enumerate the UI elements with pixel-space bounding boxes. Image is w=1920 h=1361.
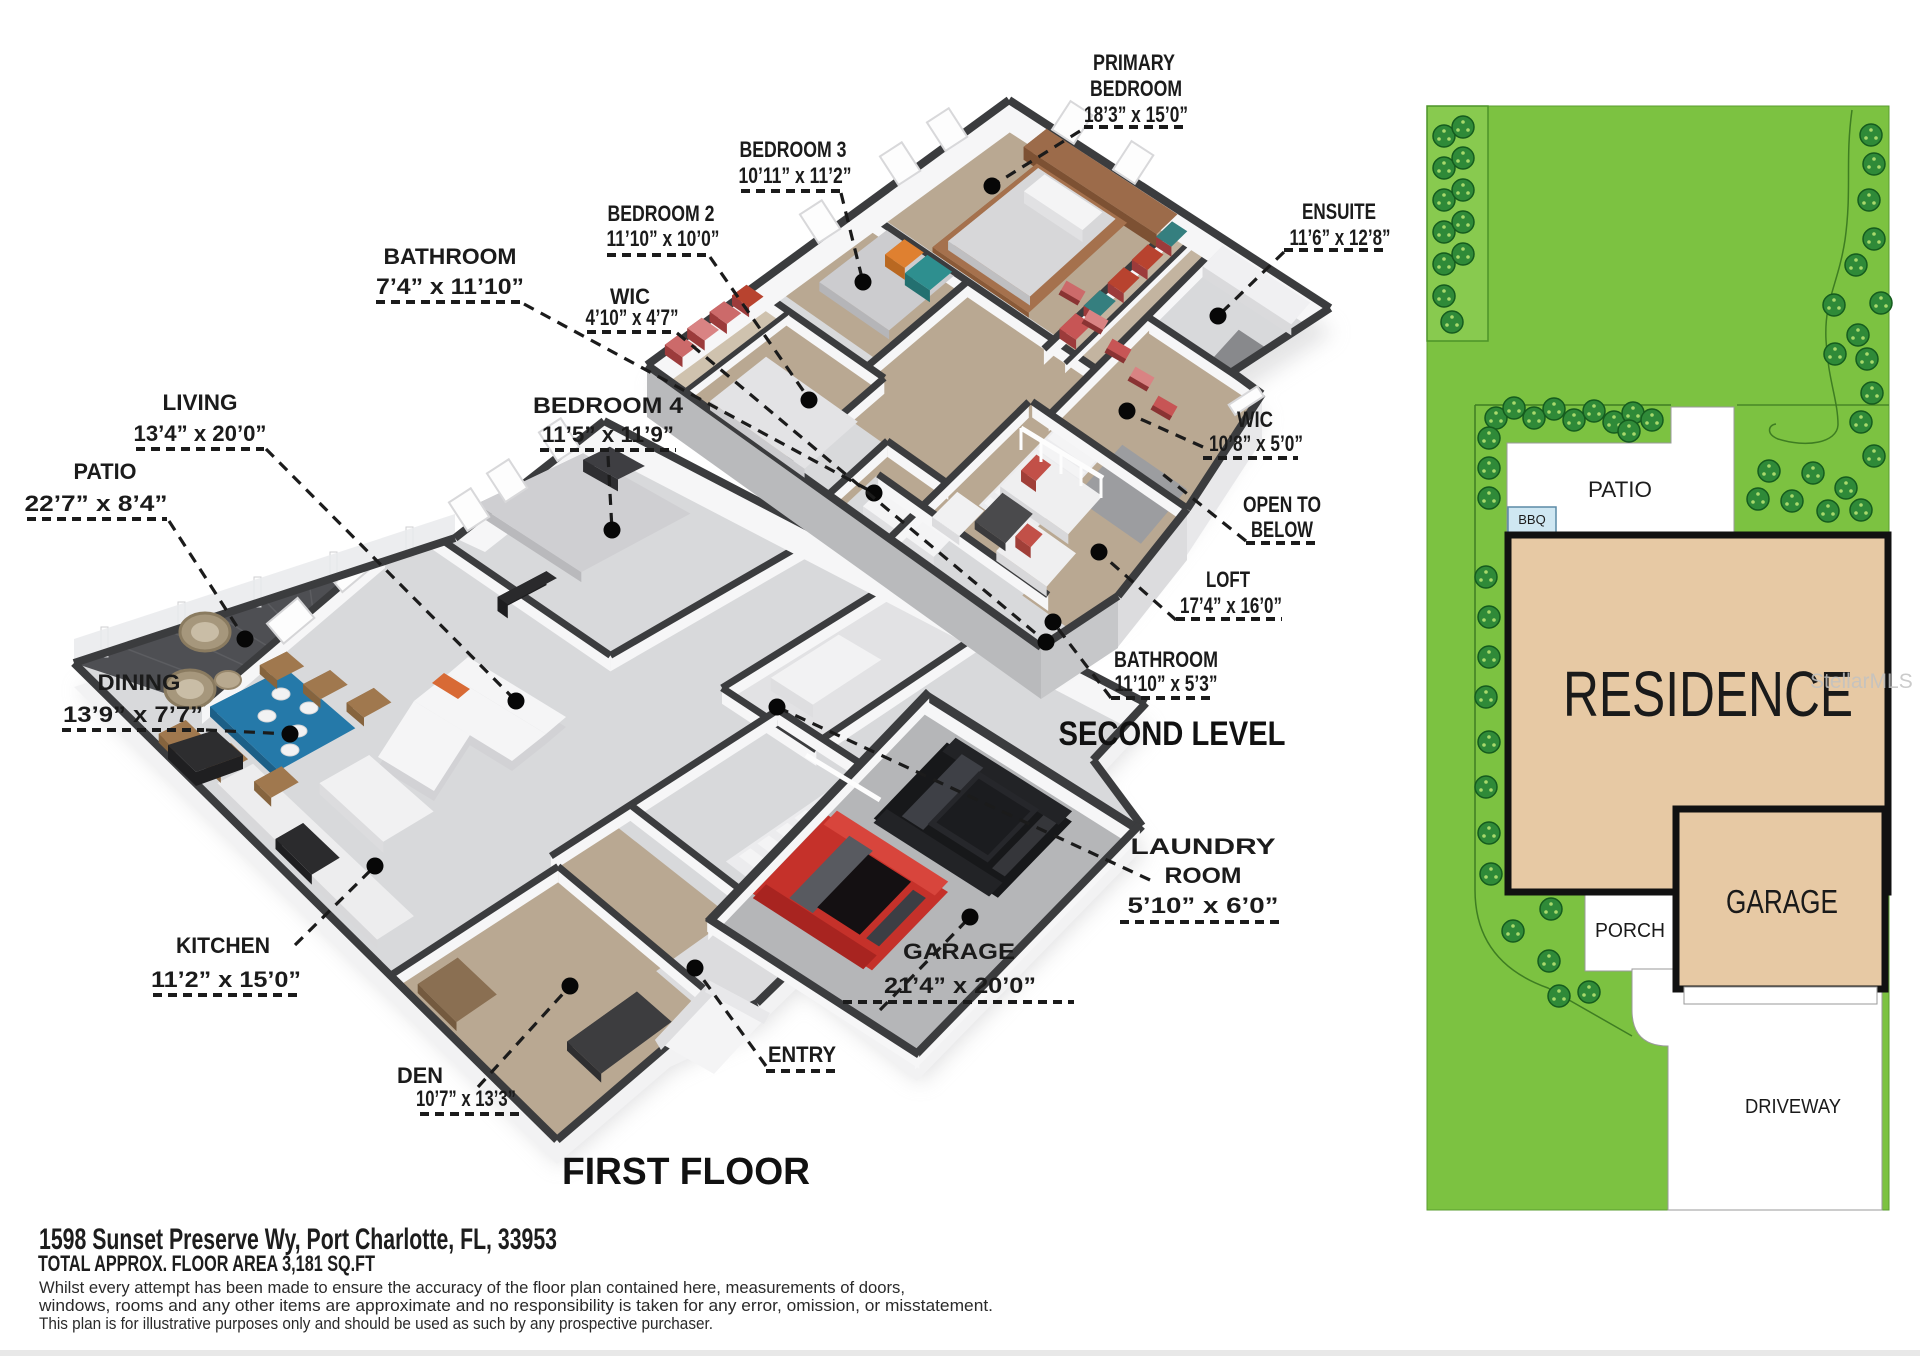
svg-text:SECOND LEVEL: SECOND LEVEL (1059, 715, 1286, 753)
svg-text:LAUNDRY: LAUNDRY (1131, 834, 1276, 859)
svg-text:ENTRY: ENTRY (768, 1042, 836, 1067)
svg-text:BATHROOM: BATHROOM (1114, 647, 1218, 672)
svg-text:10’7” x 13’3”: 10’7” x 13’3” (416, 1086, 516, 1111)
svg-text:11’2” x 15’0”: 11’2” x 15’0” (151, 967, 301, 992)
svg-text:ROOM: ROOM (1165, 863, 1242, 888)
svg-text:11’10” x 5’3”: 11’10” x 5’3” (1115, 671, 1218, 696)
svg-text:LOFT: LOFT (1206, 567, 1250, 592)
svg-text:BEDROOM 2: BEDROOM 2 (608, 201, 715, 226)
svg-text:11’6” x 12’8”: 11’6” x 12’8” (1290, 225, 1391, 250)
svg-text:11’10” x 10’0”: 11’10” x 10’0” (607, 226, 720, 251)
svg-text:KITCHEN: KITCHEN (176, 933, 270, 958)
svg-text:BBQ: BBQ (1518, 512, 1545, 527)
svg-text:BEDROOM: BEDROOM (1090, 76, 1182, 101)
svg-text:BEDROOM 4: BEDROOM 4 (533, 393, 684, 418)
svg-text:PATIO: PATIO (74, 459, 137, 484)
svg-text:DRIVEWAY: DRIVEWAY (1745, 1096, 1841, 1118)
svg-text:OPEN TO: OPEN TO (1243, 492, 1321, 517)
svg-text:17’4” x 16’0”: 17’4” x 16’0” (1180, 593, 1282, 618)
svg-text:This plan is for illustrative: This plan is for illustrative purposes o… (39, 1314, 713, 1333)
svg-text:GARAGE: GARAGE (903, 939, 1015, 964)
svg-text:Whilst every attempt has been: Whilst every attempt has been made to en… (39, 1278, 905, 1297)
svg-text:TOTAL APPROX. FLOOR AREA 3,181: TOTAL APPROX. FLOOR AREA 3,181 SQ.FT (38, 1251, 375, 1276)
svg-text:GARAGE: GARAGE (1726, 883, 1838, 920)
svg-text:PATIO: PATIO (1588, 477, 1652, 502)
svg-text:RESIDENCE: RESIDENCE (1563, 658, 1853, 730)
svg-text:21’4” x 20’0”: 21’4” x 20’0” (884, 973, 1036, 998)
svg-text:ENSUITE: ENSUITE (1302, 199, 1376, 224)
svg-text:PORCH: PORCH (1595, 920, 1665, 942)
svg-text:13’4” x 20’0”: 13’4” x 20’0” (134, 421, 267, 446)
svg-text:22’7” x 8’4”: 22’7” x 8’4” (25, 491, 168, 516)
svg-text:BEDROOM 3: BEDROOM 3 (740, 137, 847, 162)
svg-text:DEN: DEN (397, 1063, 443, 1088)
svg-text:FIRST FLOOR: FIRST FLOOR (562, 1151, 810, 1193)
svg-text:13’9” x 7’7”: 13’9” x 7’7” (63, 702, 203, 727)
svg-text:10’11” x 11’2”: 10’11” x 11’2” (739, 163, 852, 188)
svg-text:BELOW: BELOW (1251, 517, 1313, 542)
svg-text:PRIMARY: PRIMARY (1093, 50, 1175, 75)
svg-text:BATHROOM: BATHROOM (384, 244, 517, 269)
svg-text:10’8” x 5’0”: 10’8” x 5’0” (1209, 431, 1303, 456)
svg-text:DINING: DINING (98, 670, 181, 695)
svg-text:windows, rooms and any other i: windows, rooms and any other items are a… (38, 1296, 993, 1315)
svg-text:18’3” x 15’0”: 18’3” x 15’0” (1084, 102, 1188, 127)
svg-text:WIC: WIC (1237, 407, 1273, 432)
svg-text:LIVING: LIVING (163, 390, 238, 415)
svg-text:7’4” x 11’10”: 7’4” x 11’10” (376, 274, 524, 299)
svg-text:11’5” x 11’9”: 11’5” x 11’9” (542, 422, 674, 447)
svg-text:4’10” x 4’7”: 4’10” x 4’7” (586, 305, 679, 330)
svg-text:StellarMLS: StellarMLS (1810, 670, 1913, 693)
svg-text:5’10” x 6’0”: 5’10” x 6’0” (1128, 893, 1279, 918)
